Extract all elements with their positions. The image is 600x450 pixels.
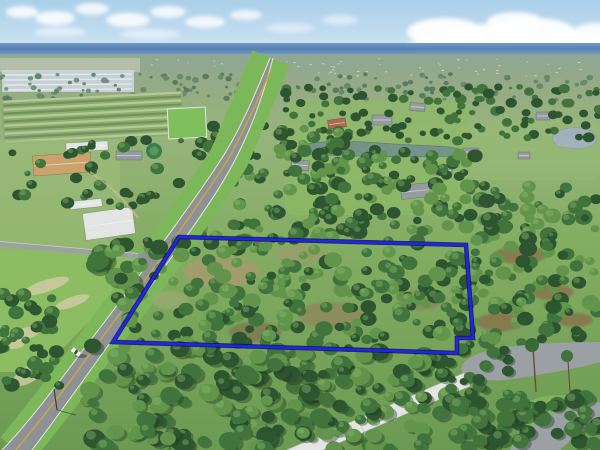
- outbuilding: [116, 151, 142, 160]
- aerial-photo: [0, 0, 600, 450]
- house-6: [536, 112, 550, 120]
- round-tank-top: [150, 147, 159, 156]
- house-7: [518, 152, 530, 159]
- distant-greenhouses: [0, 58, 140, 92]
- house-2: [410, 102, 426, 111]
- sky: [0, 0, 600, 61]
- green-paddock: [167, 107, 207, 139]
